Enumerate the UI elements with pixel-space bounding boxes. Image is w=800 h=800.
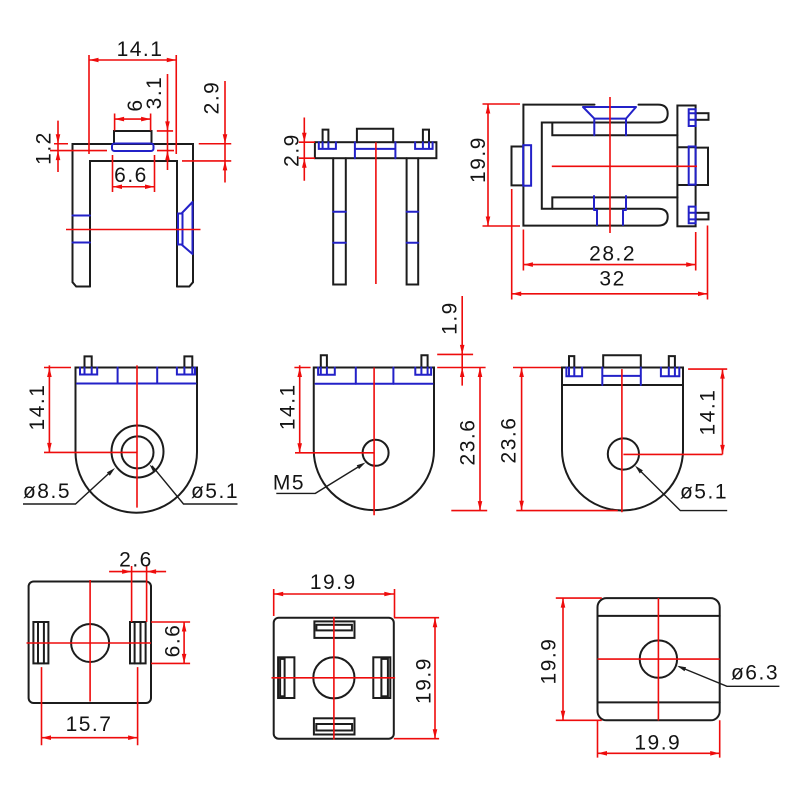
- svg-text:ø8.5: ø8.5: [23, 480, 71, 503]
- svg-text:6.6: 6.6: [162, 624, 185, 658]
- svg-text:1.9: 1.9: [439, 301, 462, 335]
- svg-text:19.9: 19.9: [310, 571, 357, 594]
- svg-text:ø5.1: ø5.1: [680, 481, 728, 504]
- svg-text:28.2: 28.2: [589, 242, 636, 265]
- svg-text:2.9: 2.9: [281, 133, 304, 167]
- svg-text:2.9: 2.9: [201, 81, 224, 115]
- svg-text:14.1: 14.1: [277, 383, 300, 430]
- svg-text:19.9: 19.9: [634, 732, 681, 755]
- svg-text:M5: M5: [273, 472, 305, 495]
- svg-text:14.1: 14.1: [697, 389, 720, 436]
- svg-text:2.6: 2.6: [119, 549, 153, 572]
- svg-text:14.1: 14.1: [117, 38, 164, 61]
- svg-text:19.9: 19.9: [467, 136, 490, 183]
- svg-text:19.9: 19.9: [413, 657, 436, 704]
- svg-text:ø5.1: ø5.1: [191, 480, 239, 503]
- svg-text:23.6: 23.6: [498, 417, 521, 464]
- svg-text:19.9: 19.9: [538, 638, 561, 685]
- svg-text:23.6: 23.6: [457, 419, 480, 466]
- svg-text:14.1: 14.1: [26, 384, 49, 431]
- svg-text:3.1: 3.1: [143, 76, 166, 110]
- svg-text:ø6.3: ø6.3: [731, 662, 779, 685]
- svg-text:1.2: 1.2: [33, 131, 56, 165]
- svg-text:32: 32: [599, 268, 625, 291]
- svg-text:15.7: 15.7: [66, 713, 113, 736]
- svg-text:6.6: 6.6: [114, 164, 148, 187]
